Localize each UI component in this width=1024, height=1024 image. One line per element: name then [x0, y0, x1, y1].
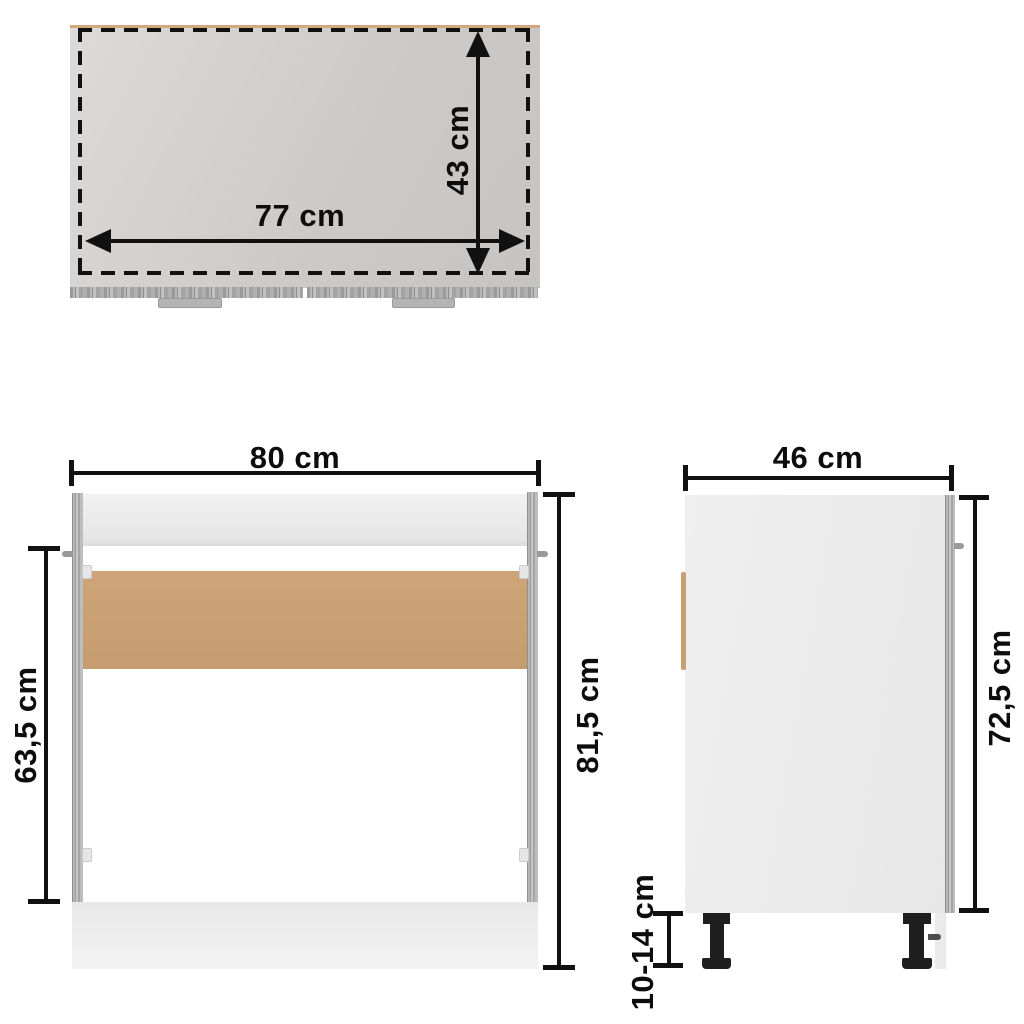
hinge-tab-icon	[82, 565, 92, 579]
dim-label-top-width: 77 cm	[230, 199, 370, 233]
front-view: 80 cm 63,5 cm 81,5 cm	[0, 430, 620, 1024]
dim-tick	[543, 492, 575, 497]
top-view: 77 cm 43 cm	[0, 0, 620, 320]
dim-tick	[69, 460, 74, 486]
arrowhead-down-icon	[466, 248, 490, 274]
side-back-panel-edge	[945, 495, 955, 913]
dim-tick	[543, 965, 575, 970]
front-bottom-panel	[72, 902, 538, 969]
front-top-rail	[72, 494, 538, 546]
dim-tick	[28, 899, 60, 904]
arrowhead-up-icon	[466, 31, 490, 57]
side-back-bottom-strip	[935, 913, 946, 969]
arrowhead-left-icon	[85, 229, 111, 253]
front-back-board	[83, 571, 527, 669]
mount-tab-right	[392, 298, 455, 308]
dim-label-side-body-height: 72,5 cm	[983, 608, 1017, 768]
dashed-edge-left	[78, 28, 82, 275]
leg-stem	[710, 922, 724, 963]
hinge-tab-icon	[519, 565, 529, 579]
dim-label-top-depth: 43 cm	[441, 75, 475, 225]
dim-label-front-width: 80 cm	[225, 441, 365, 475]
wood-strip-right	[307, 287, 538, 298]
dim-tick	[28, 546, 60, 551]
dashed-edge-bottom	[78, 271, 530, 275]
leg-front	[702, 913, 732, 999]
dashed-edge-right	[526, 28, 530, 275]
product-dimension-diagram: 77 cm 43 cm 80 cm	[0, 0, 1024, 1024]
screw-pin-icon	[62, 551, 73, 557]
leg-foot	[902, 958, 932, 969]
leg-adjuster-screw-icon	[928, 934, 941, 940]
dim-front-opening-line	[44, 548, 48, 904]
dim-label-front-total-height: 81,5 cm	[571, 635, 605, 795]
dim-line	[476, 47, 480, 258]
hinge-tab-icon	[519, 848, 529, 862]
leg-back	[902, 913, 934, 999]
dim-label-side-depth: 46 cm	[748, 441, 888, 475]
dim-side-leg-line	[667, 913, 671, 968]
screw-pin-icon	[954, 543, 964, 549]
dim-tick	[949, 465, 954, 491]
screw-pin-icon	[537, 551, 548, 557]
dim-tick	[683, 465, 688, 491]
dim-tick	[959, 495, 989, 500]
dim-side-body-line	[973, 497, 977, 912]
dim-front-total-line	[557, 494, 561, 969]
dim-line	[101, 239, 509, 243]
wood-strip-left	[70, 287, 303, 298]
dim-label-side-leg-height: 10-14 cm	[626, 872, 660, 1012]
dashed-edge-top	[78, 28, 530, 32]
dim-label-front-opening-height: 63,5 cm	[9, 645, 43, 805]
arrowhead-right-icon	[499, 229, 525, 253]
hinge-tab-icon	[82, 848, 92, 862]
dim-side-depth-line	[685, 476, 952, 480]
side-body-panel	[685, 495, 945, 913]
side-view: 46 cm 72,5 cm 10-14 cm	[620, 430, 1024, 1024]
leg-stem	[909, 922, 924, 963]
dim-tick	[959, 908, 989, 913]
leg-foot	[702, 958, 731, 969]
mount-tab-left	[158, 298, 222, 308]
side-board-edge	[681, 572, 686, 670]
dim-tick	[536, 460, 541, 486]
